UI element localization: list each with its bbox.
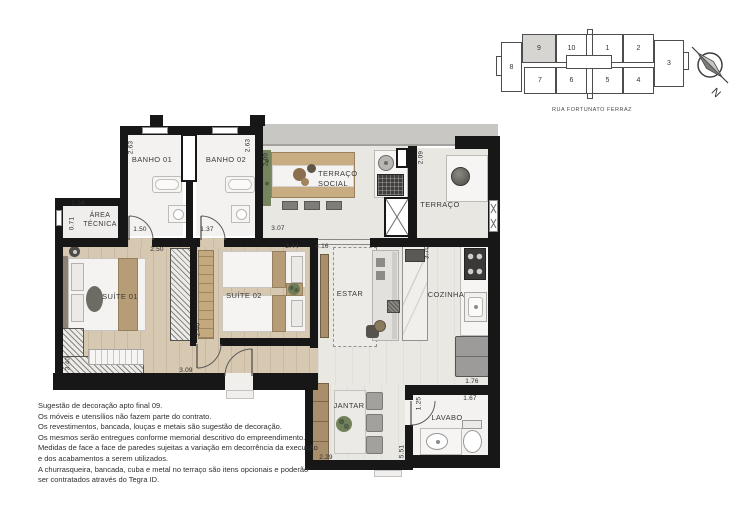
keyplan-unit-label: 2 [637, 45, 641, 52]
room-label-suite02: SUÍTE 02 [219, 291, 269, 300]
wall [455, 136, 500, 149]
wall [55, 198, 63, 390]
keyplan-unit-label: 7 [538, 77, 542, 84]
entry-door-gap [225, 373, 253, 390]
keyplan-unit-label: 10 [568, 45, 576, 52]
room-label-area-tecnica-2: TÉCNICA [75, 221, 125, 228]
bench [88, 349, 144, 365]
wall [150, 115, 163, 126]
disclaimer-line: Medidas de face a face de paredes sujeit… [38, 443, 378, 454]
dimension-closet-height: 2.40 [195, 315, 202, 345]
dimension-suite01-height: 3.40 [65, 349, 72, 379]
keyplan-unit-2: 2 [623, 34, 654, 63]
pillow [71, 263, 84, 291]
decor-plate [301, 178, 309, 186]
room-label-terraco: TERRAÇO [415, 200, 465, 209]
keyplan-unit-3: 3 [654, 40, 684, 87]
disclaimer-line: Os móveis e utensílios não fazem parte d… [38, 412, 378, 423]
room-label-suite01: SUÍTE 01 [95, 292, 145, 301]
disclaimer-line: Os revestimentos, bancada, louças e meta… [38, 422, 378, 433]
room-label-estar: ESTAR [325, 289, 375, 298]
wall [488, 385, 500, 468]
keyplan-unit-7: 7 [524, 67, 556, 94]
wall [405, 385, 413, 400]
wall [370, 238, 500, 247]
dimension-lavabo-passage: 1.76 [457, 378, 487, 385]
dimension-banho01-width: 1.50 [125, 226, 155, 233]
window [142, 127, 168, 134]
barbecue-sink [378, 155, 394, 171]
toilet-bowl [463, 430, 482, 453]
decor-plate [307, 164, 316, 173]
sink [168, 205, 187, 223]
dimension-terraco-height: 2.09 [418, 143, 425, 173]
keyplan-unit-6: 6 [556, 67, 587, 94]
dimension-banho01-height: 2.63 [128, 133, 135, 163]
window [489, 200, 498, 232]
disclaimer: Sugestão de decoração apto final 09. Os … [38, 401, 378, 486]
barbecue-grill [377, 174, 404, 196]
street-label: RUA FORTUNATO FERRAZ [512, 107, 672, 113]
pillow [291, 256, 303, 283]
keyplan-unit-label: 6 [570, 77, 574, 84]
dimension-cozinha-height: 3.70 [424, 238, 431, 268]
pillow [291, 300, 303, 327]
wall [255, 119, 263, 247]
stool [374, 320, 386, 332]
dimension-suite01-width: 2.50 [142, 246, 172, 253]
plant [288, 283, 300, 295]
wall-niche [396, 148, 408, 168]
disclaimer-line: ser contratados através do Tegra ID. [38, 475, 378, 486]
compass: N [688, 45, 734, 101]
bed-runner [272, 295, 286, 332]
service-step [374, 470, 402, 477]
dimension-suite01-bottom: 3.09 [171, 367, 201, 374]
lavabo-door-gap [405, 400, 413, 425]
keyplan-unit-label: 3 [667, 60, 671, 67]
room-label-area-tecnica: ÁREA [75, 212, 125, 219]
floor-plan-sheet: BANHO 01 BANHO 02 TERRAÇO SOCIAL TERRAÇO… [0, 0, 750, 528]
dimension-banho02-width: 1.37 [192, 226, 222, 233]
basin [426, 433, 448, 450]
room-label-lavabo: LAVABO [422, 413, 472, 422]
disclaimer-line: Os mesmos serão entregues conforme memor… [38, 433, 378, 444]
wall [405, 455, 500, 468]
keyplan-unit-label: 4 [637, 77, 641, 84]
wall [310, 246, 318, 348]
bathtub [225, 176, 255, 193]
pillow [71, 294, 84, 322]
disclaimer-line: e dos acabamentos a serem utilizados. [38, 454, 378, 465]
compass-north-label: N [709, 86, 723, 100]
sink [231, 205, 250, 223]
bathtub [152, 176, 182, 193]
dimension-suite02-width: 3.44 [277, 243, 307, 250]
wall [53, 373, 225, 390]
closet [170, 248, 191, 341]
terrace-chair [282, 201, 298, 210]
dimension-area-tecnica-width: 1.34 [63, 200, 93, 207]
keyplan-unit-label: 8 [510, 64, 514, 71]
keyplan-unit-8: 8 [501, 42, 522, 92]
room-label-banho01: BANHO 01 [127, 155, 177, 164]
dimension-estar-width: 4.16 [307, 243, 337, 250]
bed-runner [272, 251, 286, 288]
terrace-chair [304, 201, 320, 210]
keyplan-unit-4: 4 [623, 67, 654, 94]
dimension-banho02-height: 2.63 [245, 131, 252, 161]
wall [220, 338, 318, 346]
window [212, 127, 238, 134]
keyplan-core [566, 55, 612, 69]
wall [488, 136, 500, 390]
room-label-banho02: BANHO 02 [201, 155, 251, 164]
cooktop [464, 248, 486, 280]
keyplan-unit-label: 1 [606, 45, 610, 52]
disclaimer-line: A churrasqueira, bancada, cuba e metal n… [38, 465, 378, 476]
dimension-area-tecnica-height: 0.71 [69, 209, 76, 239]
terrace-basin [451, 167, 470, 186]
dimension-lavabo-height: 1.25 [416, 389, 423, 419]
coffee-machine [405, 249, 425, 262]
dimension-jantar-height: 5.51 [399, 437, 406, 467]
keyplan-unit-5: 5 [592, 67, 623, 94]
duct-shaft [181, 134, 197, 182]
dimension-terraco-social-height: 2.09 [263, 145, 270, 175]
room-label-terraco-social-2: SOCIAL [318, 179, 378, 188]
keyplan-unit-label: 5 [606, 77, 610, 84]
room-label-cozinha: COZINHA [419, 290, 473, 299]
nightstand [69, 246, 80, 257]
stool [387, 300, 400, 313]
room-label-terraco-social: TERRAÇO [318, 169, 378, 178]
dimension-lavabo-width: 1.67 [455, 395, 485, 402]
disclaimer-line: Sugestão de decoração apto final 09. [38, 401, 378, 412]
entry-step [226, 390, 254, 399]
duct-shaft [384, 197, 410, 237]
terrace-chair [326, 201, 342, 210]
keyplan-unit-label: 9 [537, 45, 541, 52]
window [56, 210, 62, 226]
keyplan-unit-9-highlighted: 9 [522, 34, 556, 63]
dimension-terraco-social-width: 3.07 [263, 225, 293, 232]
refrigerator [455, 336, 489, 377]
banho02-door-gap [200, 238, 224, 247]
